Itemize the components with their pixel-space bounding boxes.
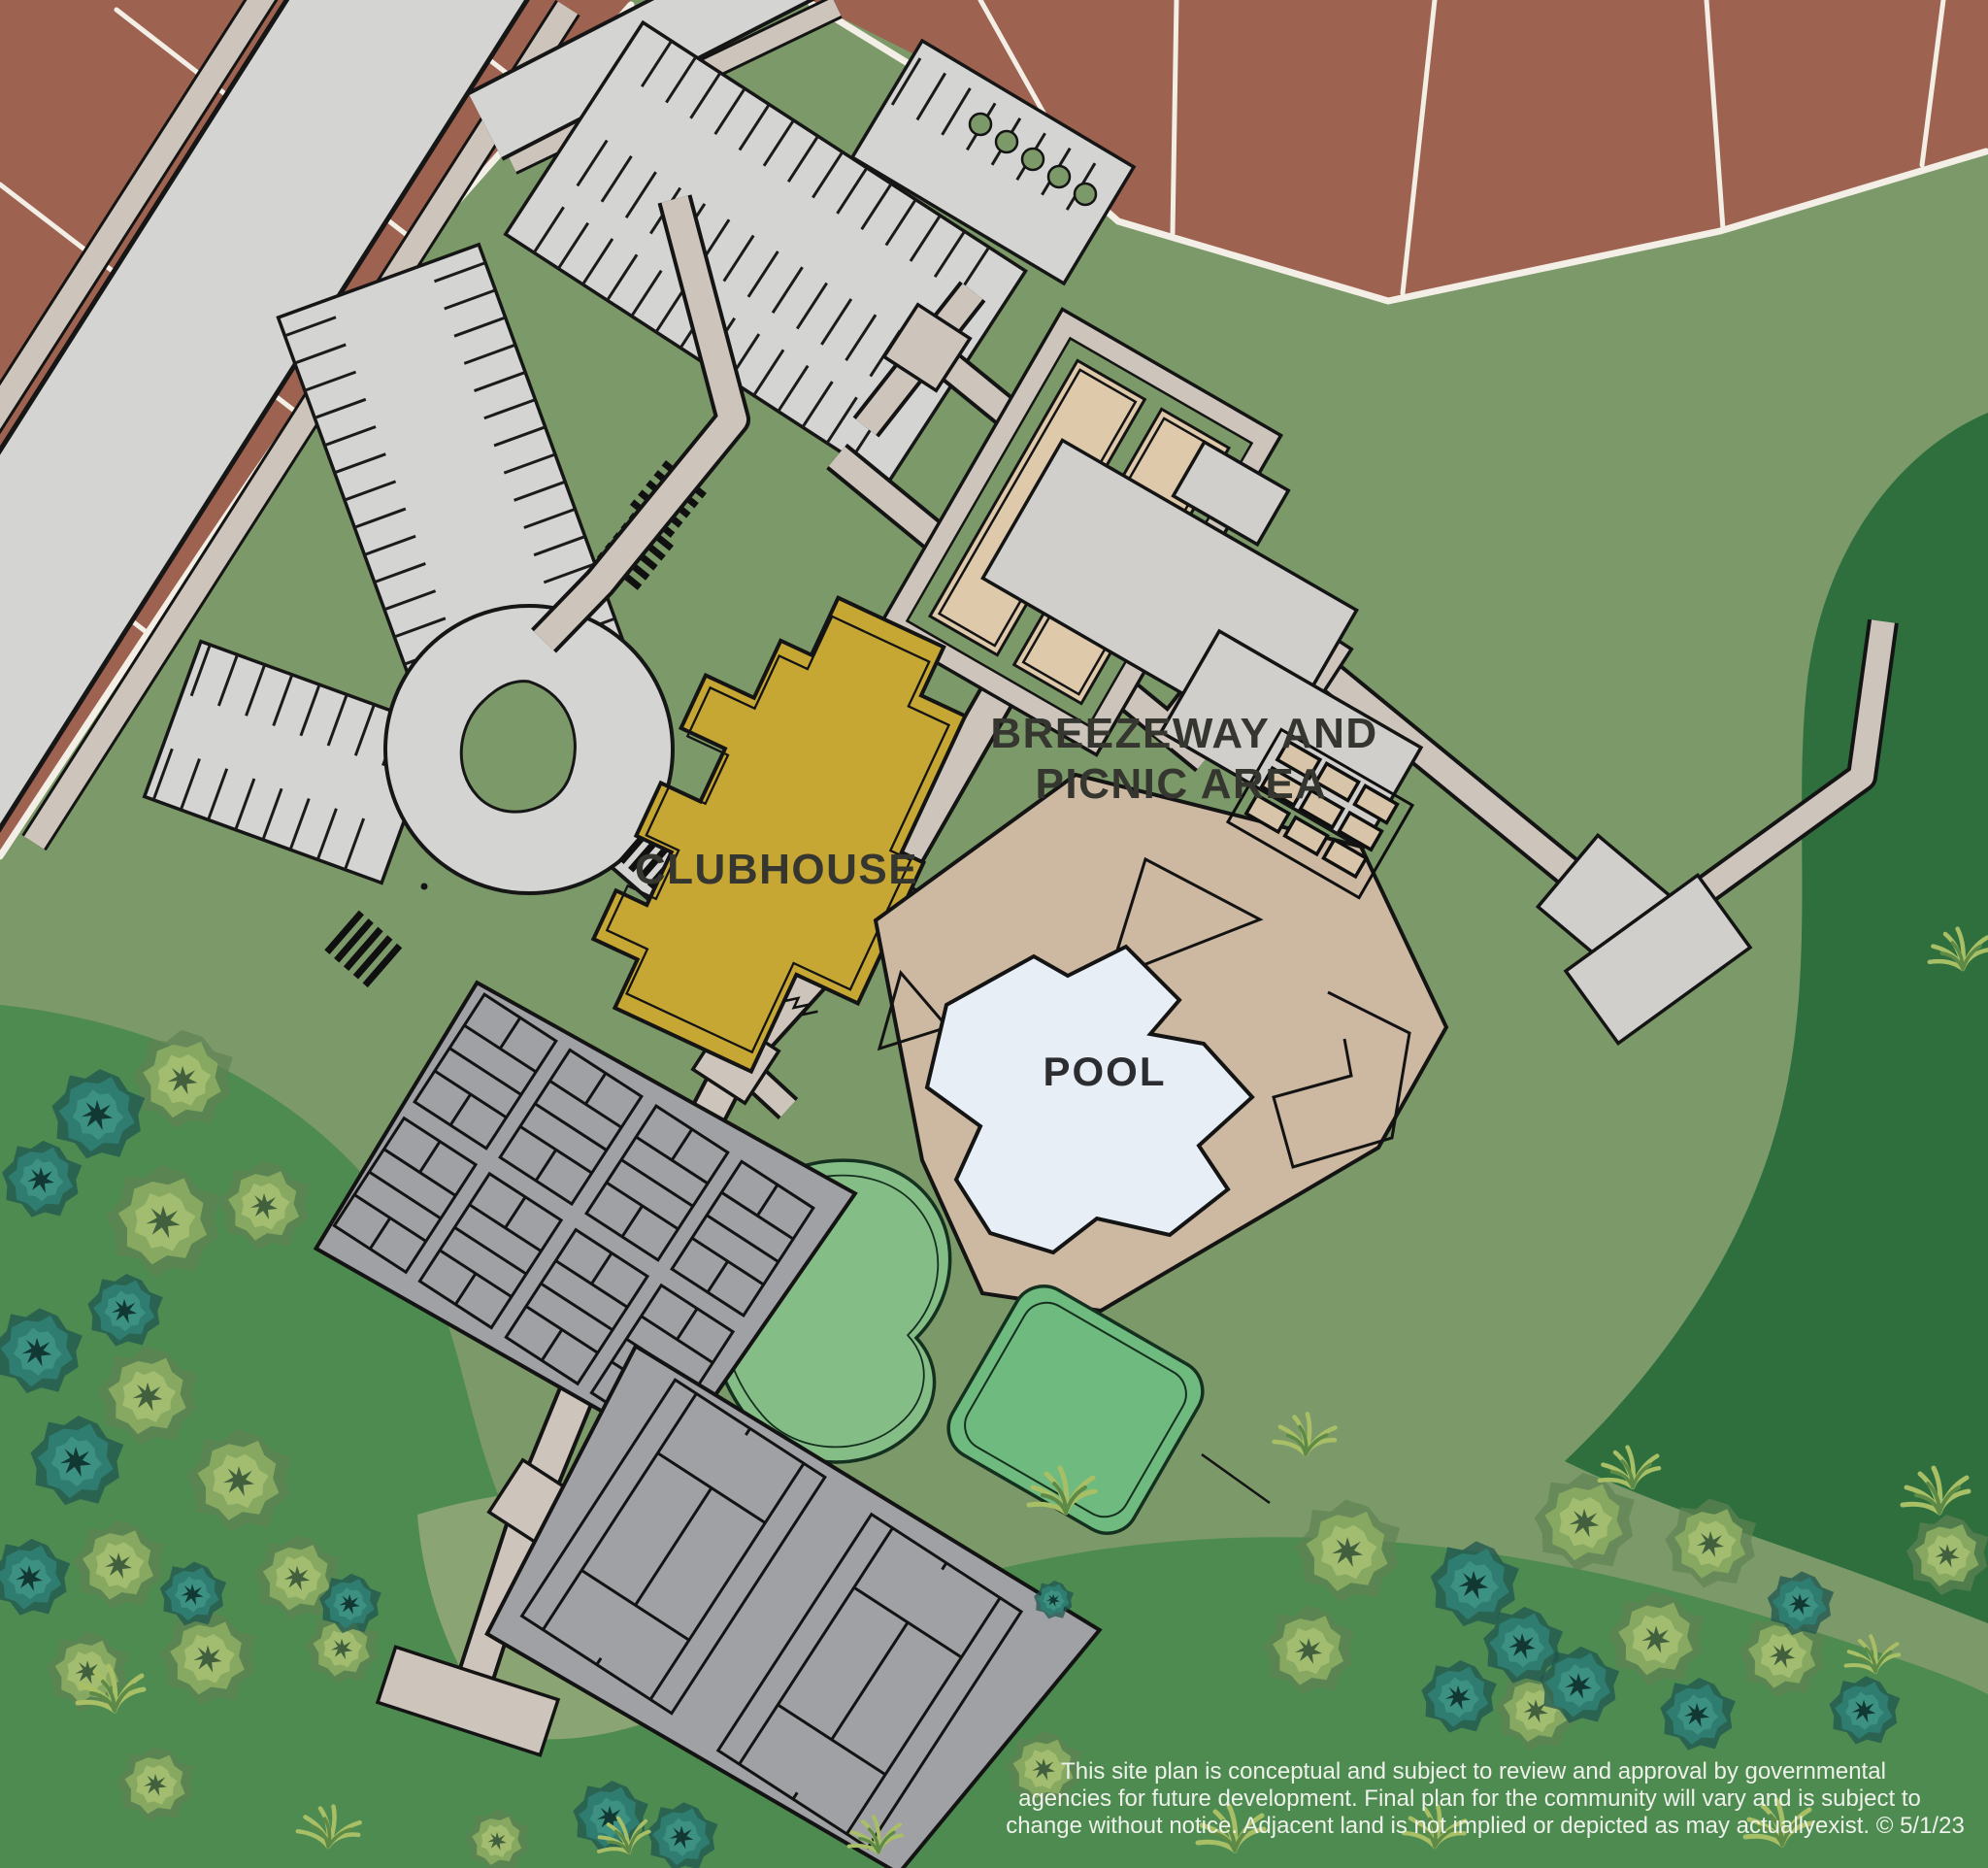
pool-label: POOL [1043, 1049, 1166, 1094]
breezeway-label-line1: BREEZEWAY AND [990, 710, 1377, 757]
clubhouse-label: CLUBHOUSE [635, 846, 918, 893]
disclaimer-text: This site plan is conceptual and subject… [1006, 1758, 1965, 1839]
disclaimer-line3: change without notice. Adjacent land is … [1006, 1813, 1965, 1839]
site-plan-map: CLUBHOUSE BREEZEWAY AND PICNIC AREA POOL… [0, 0, 1988, 1868]
disclaimer-line1: This site plan is conceptual and subject… [1061, 1758, 1886, 1785]
breezeway-label-line2: PICNIC AREA [1036, 760, 1328, 808]
disclaimer-line2: agencies for future development. Final p… [1018, 1785, 1921, 1812]
site-plan-page: CLUBHOUSE BREEZEWAY AND PICNIC AREA POOL… [0, 0, 1988, 1868]
